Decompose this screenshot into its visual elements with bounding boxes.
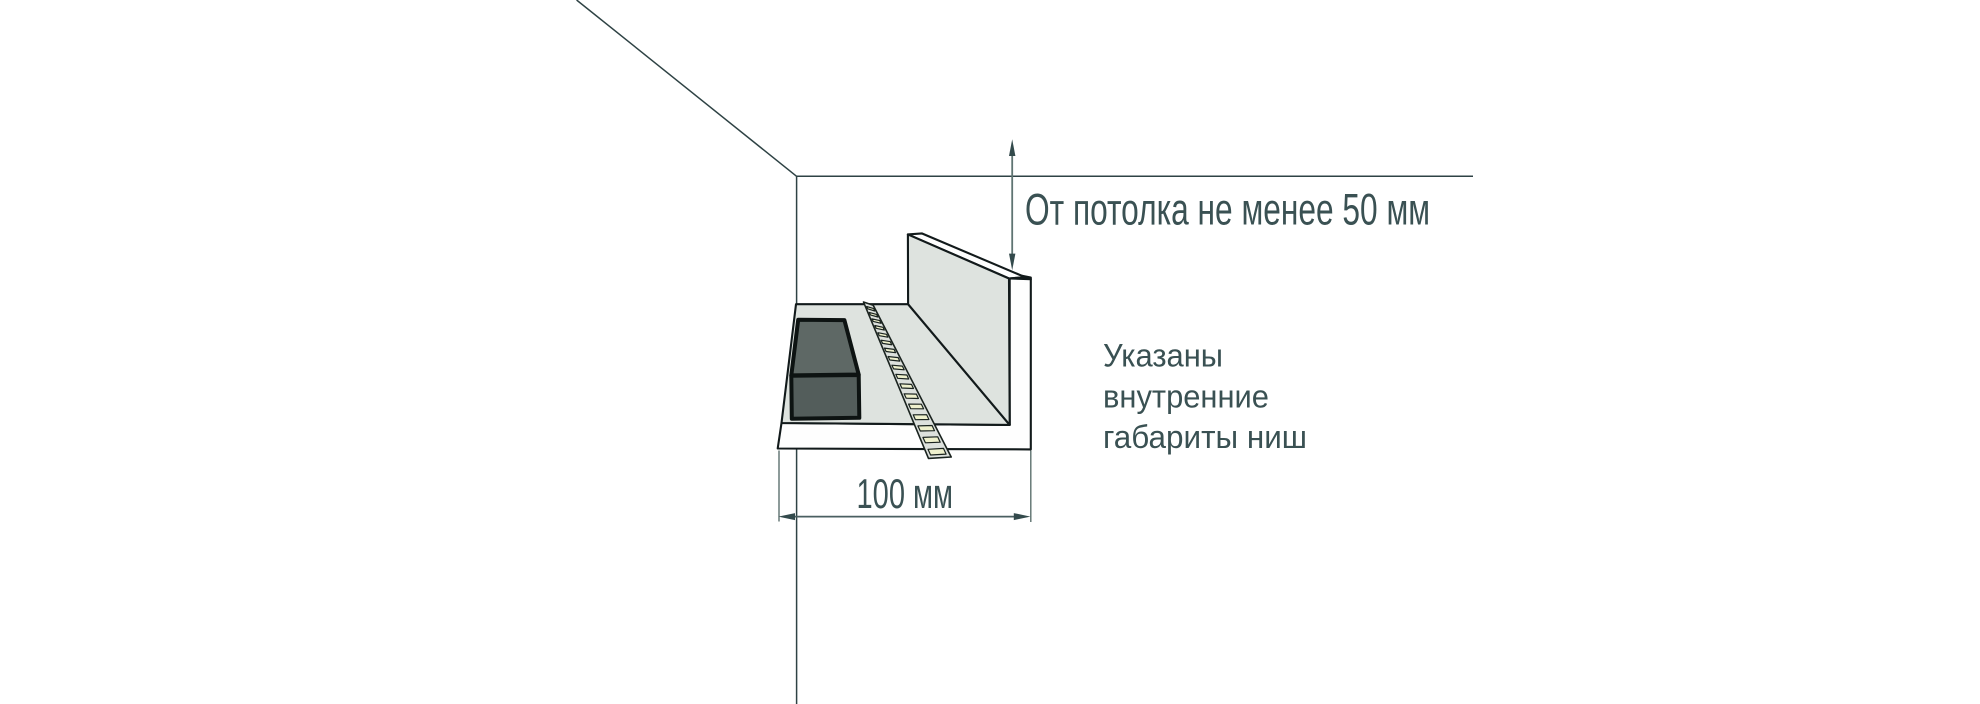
svg-text:От потолка не менее 50 мм: От потолка не менее 50 мм	[1025, 186, 1430, 235]
svg-text:Указаны: Указаны	[1103, 338, 1223, 374]
svg-text:габариты ниш: габариты ниш	[1103, 419, 1307, 455]
svg-text:внутренние: внутренние	[1103, 379, 1269, 415]
svg-text:100 мм: 100 мм	[857, 470, 954, 517]
